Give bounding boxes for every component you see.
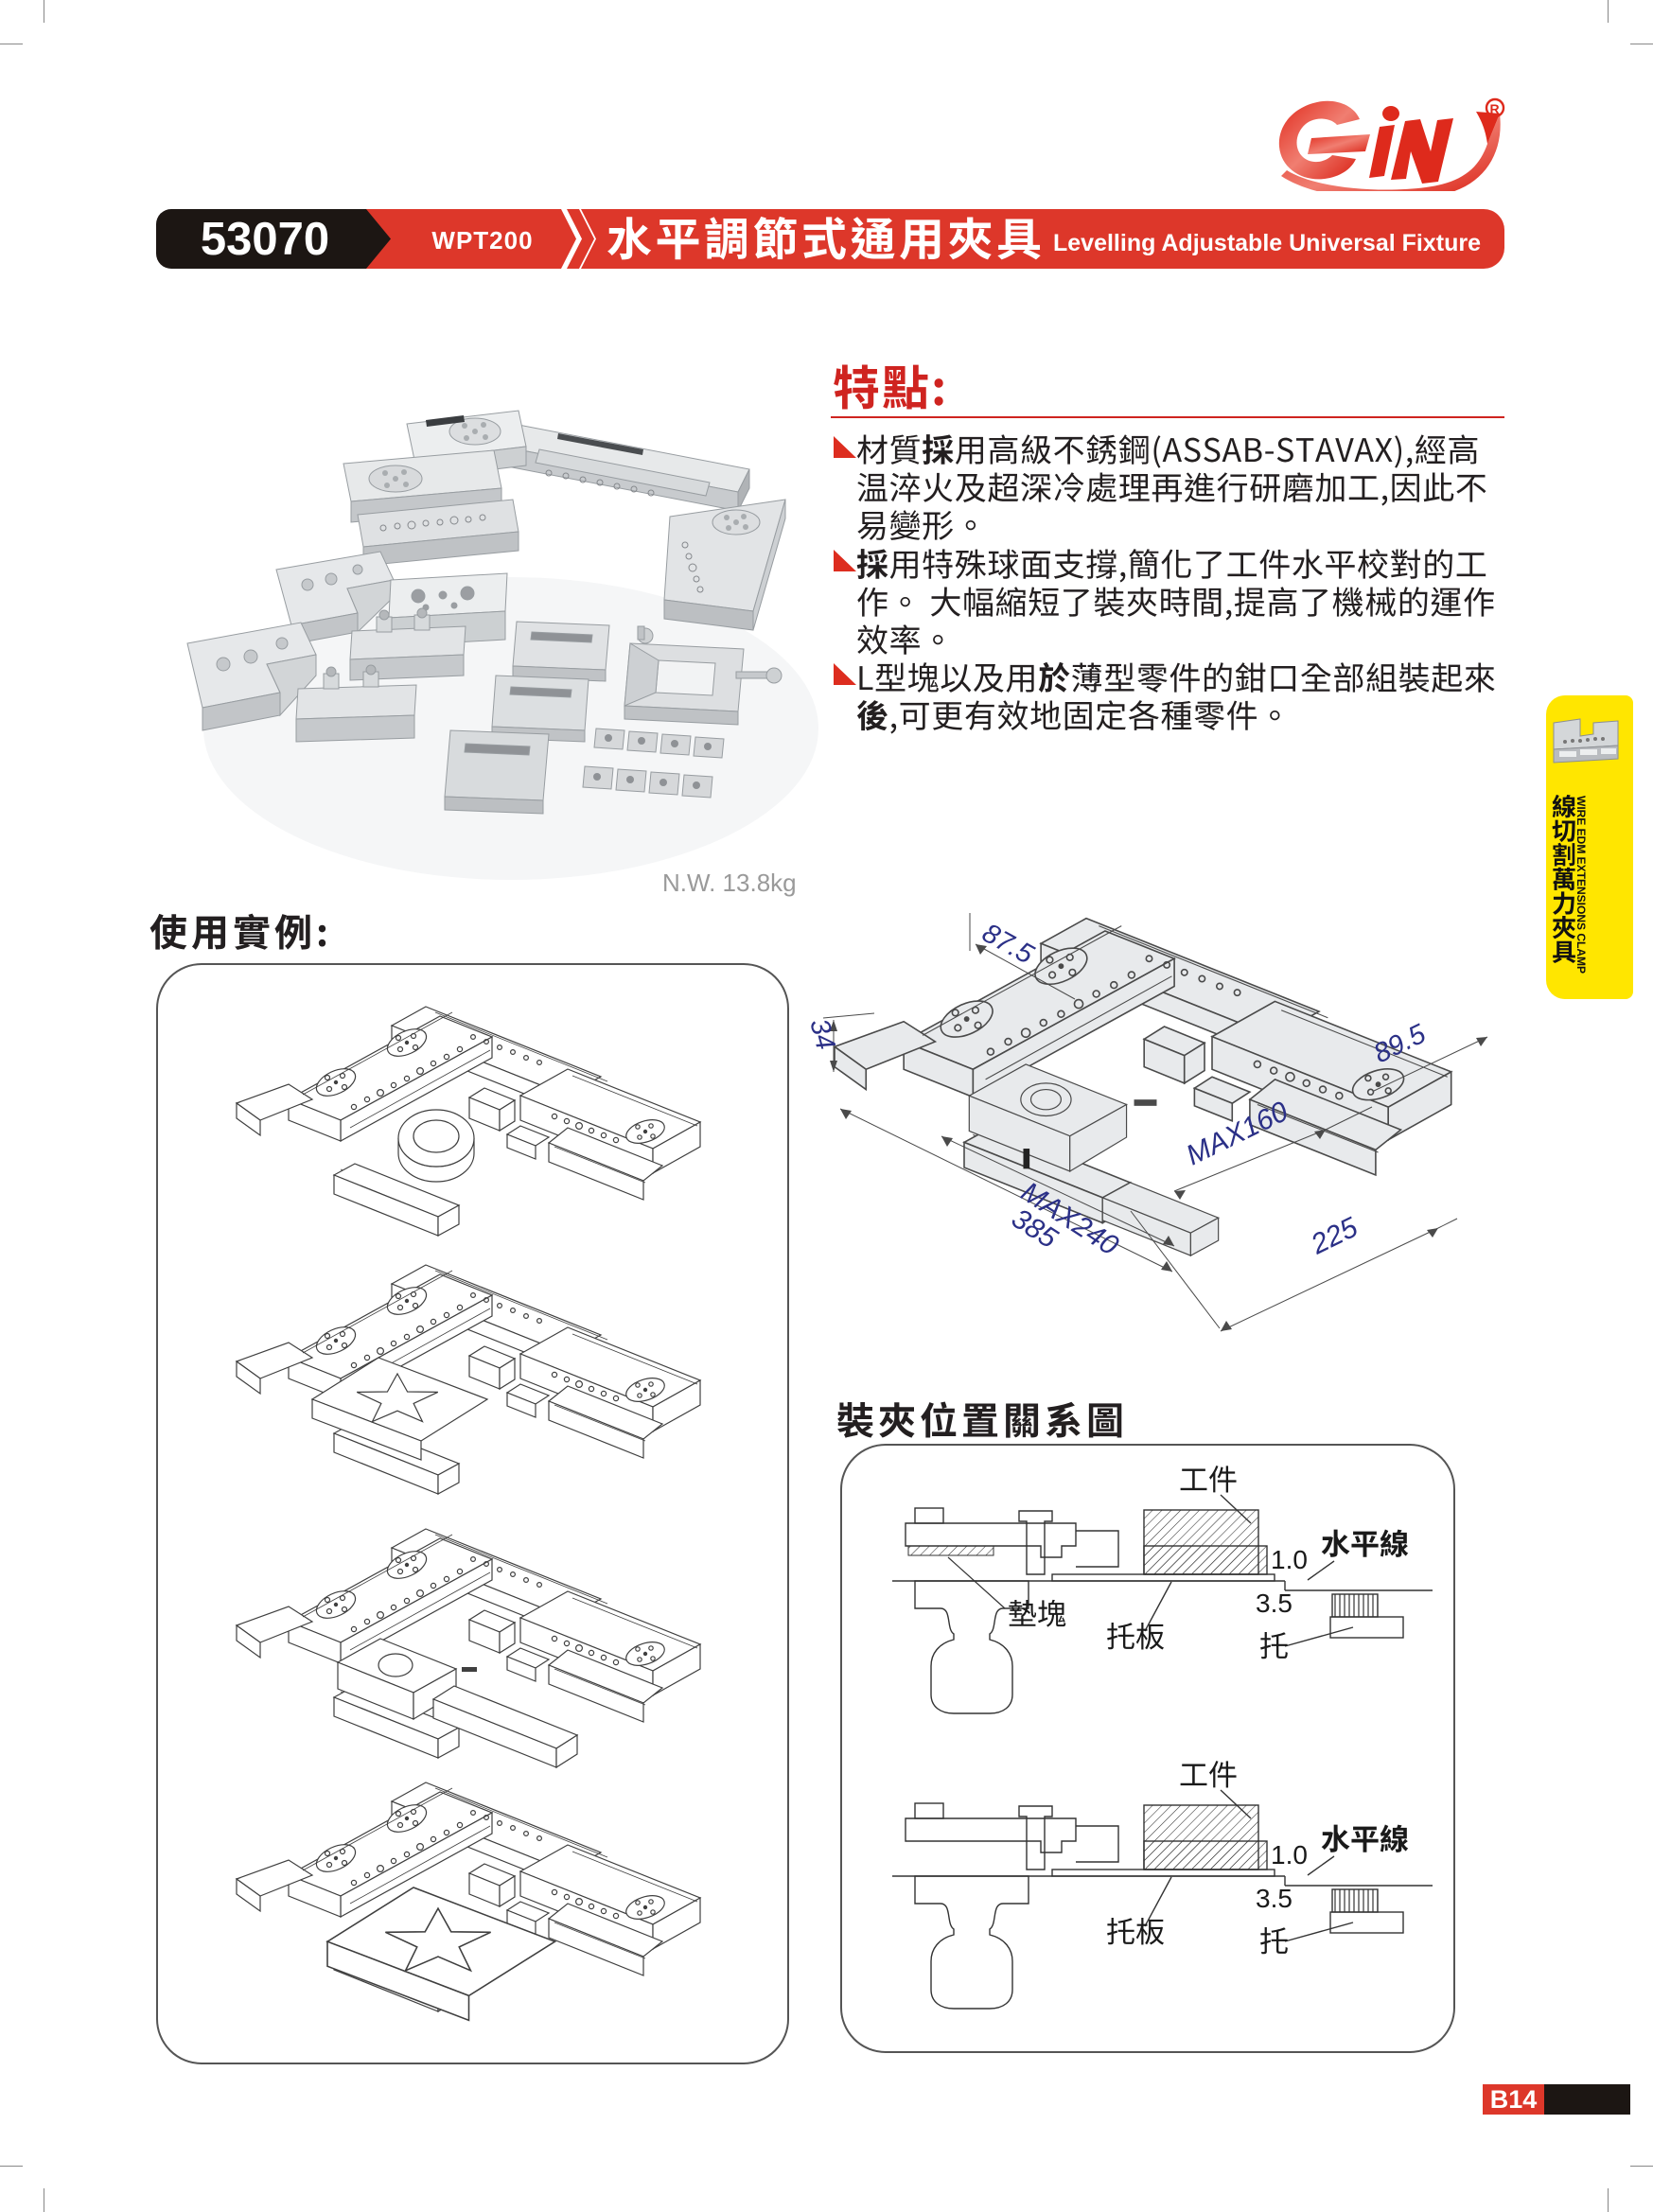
svg-text:3.5: 3.5 [1256,1884,1293,1913]
svg-text:225: 225 [1306,1212,1363,1261]
svg-text:1.0: 1.0 [1271,1840,1308,1870]
svg-text:3.5: 3.5 [1256,1589,1293,1618]
svg-text:1.0: 1.0 [1271,1545,1308,1574]
svg-text:R: R [1490,101,1500,116]
